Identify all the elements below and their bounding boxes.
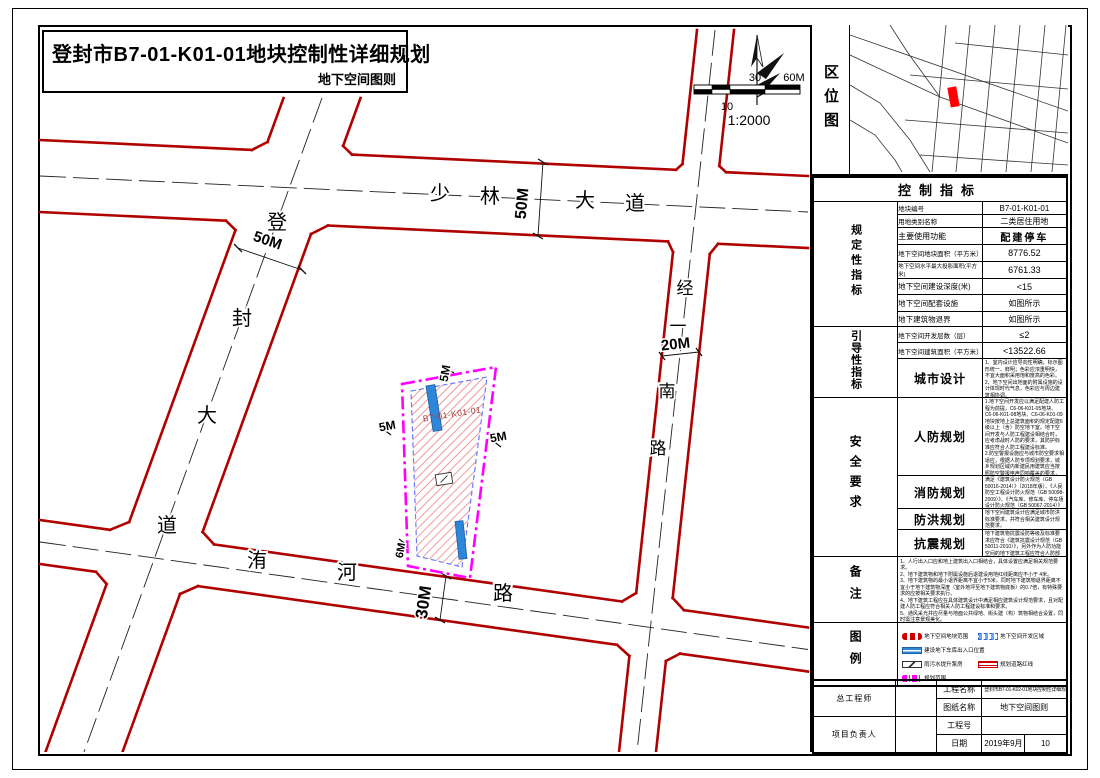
row-value: 6761.33: [982, 262, 1067, 279]
road-char: 道: [157, 514, 177, 537]
location-map-sketch: [850, 25, 1068, 172]
notes-text: 1、人行出入口应和地上建筑出入口相结合，具体设置应满足相关规范要求。 2、地下建…: [898, 557, 1067, 623]
row-value: 8776.52: [982, 245, 1067, 262]
road-char: 经: [677, 279, 694, 298]
scale-bar: 30 60M 10 1:2000: [694, 72, 805, 128]
group-regulatory: 规定性指标: [813, 202, 898, 327]
row-label: 地下空间地块面积（平方米）: [898, 245, 983, 262]
row-value: <15: [982, 279, 1067, 295]
legend-item: 规划道路红线: [978, 657, 1052, 671]
legend-item: 地下空间地块范围: [902, 629, 978, 643]
row-value: 二类居住用地: [982, 215, 1067, 228]
location-map-label: 区位图: [820, 64, 841, 136]
notes-label: 备注: [813, 557, 898, 623]
legend-item-label: 建设地下车库出入口位置: [924, 646, 985, 654]
info-panel: 区位图: [810, 25, 1068, 752]
row-label-civil-defense: 人防规划: [898, 398, 983, 476]
project-no-label: 工程号: [936, 716, 981, 734]
road-char: 河: [337, 561, 357, 584]
plan-sheet: B7-01-K01-01 少 林 大 道 登 封 大 道 经 一 南 路 洧 河…: [0, 0, 1100, 778]
control-indicators-table: 控制指标 规定性指标 地块编号 B7-01-K01-01 用地类别名称 二类居住…: [812, 176, 1068, 687]
row-label: 地块编号: [898, 202, 983, 215]
road-char: 林: [480, 185, 500, 208]
road-char: 路: [650, 439, 667, 458]
fire-text: 满足《建筑设计防火规范（GB 50016-2014）》（2018年版）、《人民防…: [982, 476, 1067, 509]
legend-item-label: 地下空间地块范围: [924, 632, 968, 640]
road-char: 大: [575, 189, 595, 212]
site-plan-map: B7-01-K01-01 少 林 大 道 登 封 大 道 经 一 南 路 洧 河…: [38, 25, 810, 752]
scale-tick-30: 30: [749, 72, 761, 84]
legend-item-label: 地下空间开发区域: [1000, 632, 1044, 640]
sewage-pump-icon: [902, 661, 922, 668]
road-char: 一: [670, 317, 687, 336]
row-value: 如图所示: [982, 312, 1067, 327]
project-name-value: 登封市B7-01-K02-01地块控制性详细规划: [982, 680, 1067, 698]
legend-section: 地下空间地块范围 地下空间开发区域 建设地下车库出入口位置 雨污水提升泵房 规划…: [898, 623, 1067, 687]
setback-6m-bottom: 6M: [394, 542, 408, 559]
indicators-title: 控制指标: [813, 177, 1067, 202]
row-label-seismic: 抗震规划: [898, 530, 983, 557]
road-char: 大: [197, 404, 217, 427]
road-jingyi-redline: [619, 30, 734, 752]
legend-label: 图例: [813, 623, 898, 687]
road-char: 封: [232, 307, 252, 330]
drawing-title-box: 登封市B7-01-K01-01地块控制性详细规划 地下空间图则: [42, 30, 408, 93]
legend-item-label: 雨污水提升泵房: [924, 660, 963, 668]
row-value: 如图所示: [982, 295, 1067, 312]
road-redline-icon: [978, 661, 998, 668]
project-director-signature: [895, 716, 936, 753]
row-value: ≤2: [982, 327, 1067, 343]
flood-text: 地下空间建筑设计应满足城市防洪标准要求，并符合相关建筑设计规范要求。: [982, 509, 1067, 530]
drawing-name-value: 地下空间图则: [982, 698, 1067, 716]
sewage-pump-room-marker: [435, 472, 453, 485]
road-char: 登: [267, 211, 287, 234]
legend-item: 地下空间开发区域: [978, 629, 1052, 643]
location-map-section: 区位图: [812, 25, 1068, 176]
urban-design-text: 1、室内设计应导向性明确，标示图形统一、鲜明；色彩应浓重明快，不宜大面积采用饱和…: [982, 359, 1067, 398]
road-width-50m: 50M: [513, 187, 533, 219]
title-block: 总工程师 工程名称 登封市B7-01-K02-01地块控制性详细规划 图纸名称 …: [812, 679, 1068, 754]
drawing-name-label: 图纸名称: [936, 698, 981, 716]
legend-item: 建设地下车库出入口位置: [902, 643, 988, 657]
row-label: 地下空间水平最大投影面积(平方米): [898, 262, 983, 279]
road-char: 洧: [247, 549, 267, 572]
chief-engineer-signature: [895, 680, 936, 716]
scale-tick-60m: 60M: [783, 72, 804, 84]
group-safety: 安全要求: [813, 398, 898, 557]
row-value: B7-01-K01-01: [982, 202, 1067, 215]
drawing-title: 登封市B7-01-K01-01地块控制性详细规划: [44, 32, 406, 67]
location-parcel-marker: [947, 86, 959, 107]
row-label: 地下空间开发层数（层）: [898, 327, 983, 343]
setback-5m-left: 5M: [378, 418, 397, 435]
road-char: 道: [625, 192, 645, 215]
road-char: 南: [659, 382, 676, 401]
road-width-20m: 20M: [660, 335, 691, 355]
project-name-label: 工程名称: [936, 680, 981, 698]
garage-entrance-icon: [902, 647, 922, 654]
setback-5m-top: 5M: [437, 364, 454, 383]
date-value: 2019年9月: [982, 734, 1025, 753]
location-map: [850, 25, 1068, 174]
row-label-fire: 消防规划: [898, 476, 983, 509]
row-label: 地下建筑物退界: [898, 312, 983, 327]
location-map-title: 区位图: [812, 25, 850, 174]
legend-item: 雨污水提升泵房: [902, 657, 978, 671]
project-no-value: [982, 716, 1067, 734]
north-arrow-icon: [751, 35, 784, 105]
row-label: 地下空间建筑面积（平方米）: [898, 343, 983, 359]
date-label: 日期: [936, 734, 981, 753]
scale-ratio: 1:2000: [728, 112, 771, 128]
row-label: 主要使用功能: [898, 228, 983, 245]
sheet-number: 10: [1024, 734, 1067, 753]
row-label: 地下空间建设深度(米): [898, 279, 983, 295]
row-label: 用地类别名称: [898, 215, 983, 228]
road-char: 路: [493, 582, 513, 605]
row-value: 配建停车: [982, 228, 1067, 245]
drawing-subtitle: 地下空间图则: [44, 67, 406, 88]
setback-5m-right: 5M: [489, 429, 508, 446]
row-label: 地下空间配套设施: [898, 295, 983, 312]
legend-item-label: 规划道路红线: [1000, 660, 1033, 668]
row-label-urban-design: 城市设计: [898, 359, 983, 398]
road-width-30m: 30M: [412, 585, 435, 620]
road-char: 少: [430, 182, 450, 205]
seismic-text: 地下建筑物抗震设防等级及标准要求应符合《建筑抗震设计规范（GB 50011-20…: [982, 530, 1067, 557]
row-label-flood: 防洪规划: [898, 509, 983, 530]
chief-engineer-label: 总工程师: [813, 680, 895, 716]
parcel-extent-icon: [902, 633, 922, 640]
civil-defense-text: 1.地下空间开发应以满足配建人防工程为前提，C6-06-K01-05地块、C6-…: [982, 398, 1067, 476]
development-area-icon: [978, 633, 998, 640]
group-guiding: 引导性指标: [813, 327, 898, 398]
row-value: <13522.66: [982, 343, 1067, 359]
project-director-label: 项目负责人: [813, 716, 895, 753]
